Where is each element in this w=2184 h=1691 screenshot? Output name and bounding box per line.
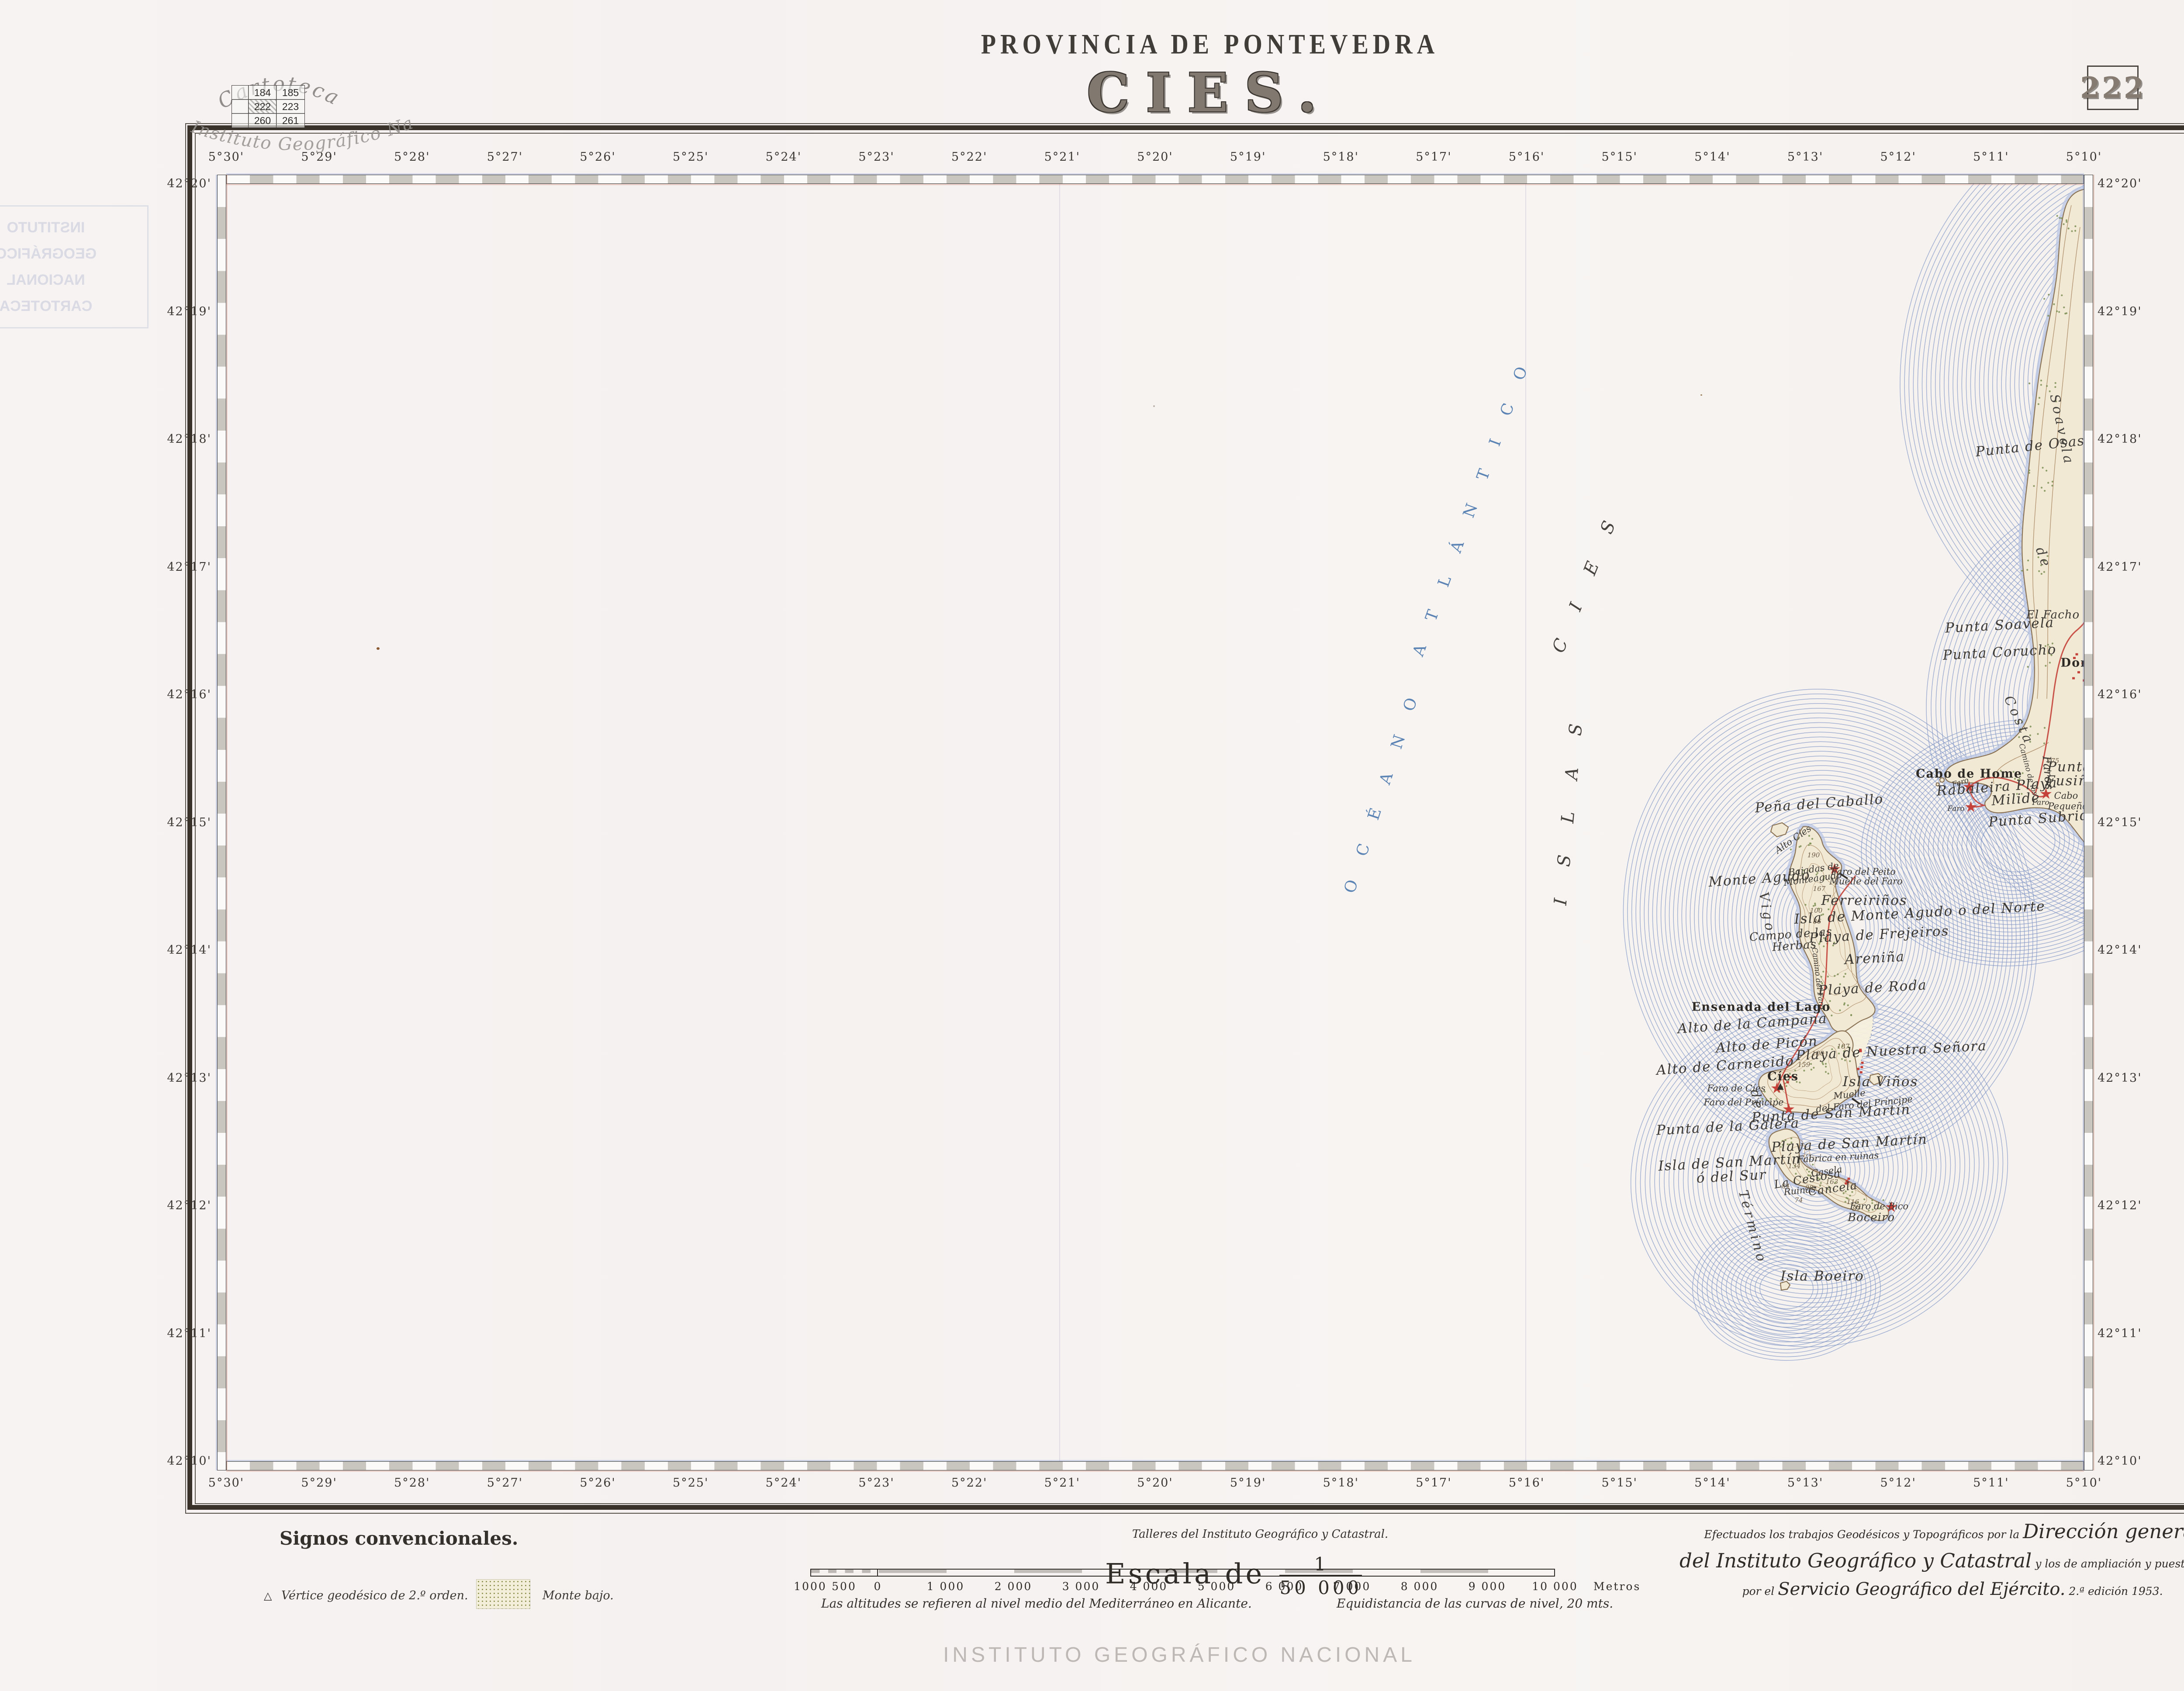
ign-watermark: INSTITUTO GEOGRÁFICO NACIONAL	[786, 1643, 1572, 1667]
sheet-index-cell: 184	[248, 85, 277, 100]
map-label: Punta Soavela	[1945, 614, 2055, 636]
credits-line2-small: y los de ampliación y puesta al día	[2032, 1557, 2184, 1570]
sheet-number-box: 222	[2087, 66, 2139, 110]
map-label: Costa	[2001, 694, 2037, 748]
credits-line2-big: del Instituto Geográfico y Catastral	[1679, 1549, 2032, 1572]
map-label: 159	[1798, 1061, 1811, 1069]
map-label: 163	[1826, 1178, 1838, 1186]
map-label: 74	[1794, 1196, 1803, 1204]
scale-bar-label: 8 000	[1389, 1580, 1450, 1593]
legend-heading: Signos convencionales.	[280, 1528, 518, 1549]
credits-line3-post: 2.ª edición 1953.	[2065, 1585, 2163, 1598]
map-label: Punta Subrido	[1988, 807, 2084, 830]
graticule-band-top	[226, 175, 2084, 184]
map-label: Término	[1735, 1188, 1770, 1266]
map-label: Alto de la Campana	[1677, 1011, 1828, 1037]
geodesic-vertex-icon: △	[264, 1590, 272, 1602]
credits-block: Efectuados los trabajos Geodésicos y Top…	[1629, 1519, 2184, 1605]
sheet-index-cell: 185	[276, 85, 305, 100]
bleed-through-line: CARTOTECA	[0, 293, 138, 319]
scale-bar-label: 3 000	[1051, 1580, 1112, 1593]
sheet-index-cell	[232, 85, 249, 100]
ign-stamp-arc: Instituto Geográfico Nacional	[179, 117, 424, 174]
scale-bar-label: 7 000	[1321, 1580, 1382, 1593]
map-label: Vigo	[1755, 891, 1778, 935]
map-label: ó del Sur	[1696, 1167, 1767, 1186]
scale-bar-label: 10 000	[1524, 1580, 1586, 1593]
sheet-index-cell	[232, 99, 249, 114]
map-label: Isla Boeiro	[1780, 1268, 1864, 1284]
bleed-through-stamp: INSTITUTO GEOGRÁFICONACIONALCARTOTECA	[0, 205, 149, 328]
credits-line3-pre: por el	[1742, 1585, 1778, 1598]
map-label: Muelle del Faro	[1829, 876, 1903, 887]
bleed-through-line: NACIONAL	[0, 267, 138, 293]
scale-bar-label: 0	[847, 1580, 909, 1593]
map-label: de	[2032, 545, 2054, 571]
province-title: PROVINCIA DE PONTEVEDRA	[948, 28, 1472, 61]
map-sheet-page: INSTITUTO GEOGRÁFICONACIONALCARTOTECA PR…	[0, 0, 2184, 1691]
sheet-title: CIES.	[948, 61, 1472, 124]
graticule-band-left	[217, 175, 226, 1470]
map-label: Isla Viños	[1843, 1074, 1918, 1090]
map-labels-layer: O C É A N OA T L Á N T I C OI S L A SC I…	[226, 184, 2084, 1461]
legend-item-monte-bajo: Monte bajo.	[543, 1589, 614, 1602]
credits-line3-big: Servicio Geográfico del Ejército.	[1778, 1579, 2065, 1599]
monte-bajo-swatch-icon	[476, 1579, 530, 1609]
map-label: Cabo	[2054, 790, 2078, 801]
equidistance-note: Equidistancia de las curvas de nivel, 20…	[1337, 1596, 1613, 1611]
map-label: 175	[2047, 757, 2060, 765]
scale-bar-label: 4 000	[1118, 1580, 1179, 1593]
map-label: Donón	[2061, 656, 2084, 670]
scale-bar-label: 2 000	[983, 1580, 1044, 1593]
legend-item-geodesic: Vértice geodésico de 2.º orden.	[281, 1589, 468, 1602]
map-label: A T L Á N T I C O	[1410, 355, 1535, 659]
altitude-note: Las altitudes se refieren al nivel medio…	[821, 1596, 1252, 1611]
sheet-index-cell: 222	[248, 99, 277, 114]
workshop-note: Talleres del Instituto Geográfico y Cata…	[1075, 1528, 1446, 1541]
map-label: Playa de Roda	[1818, 977, 1927, 998]
map-label: C I E S	[1548, 506, 1624, 656]
graticule-band-bottom	[226, 1461, 2084, 1470]
scale-bar-label: 9 000	[1457, 1580, 1518, 1593]
map-label: Peña del Caballo	[1755, 791, 1884, 816]
map-label: Cíes	[1767, 1070, 1799, 1084]
map-label: Faro del Príncipe	[1704, 1097, 1783, 1108]
scale-bar	[810, 1569, 1555, 1577]
credits-line1-small: Efectuados los trabajos Geodésicos y Top…	[1704, 1528, 2023, 1541]
map-label: Faro de Cíes	[1707, 1083, 1766, 1094]
svg-text:Instituto Geográfico Nacional: Instituto Geográfico Nacional	[179, 117, 416, 155]
sheet-index-cell: 223	[276, 99, 305, 114]
credits-line1-big: Dirección general	[2023, 1520, 2184, 1543]
map-label: Soavela	[2046, 393, 2077, 467]
graticule-band-right	[2084, 175, 2093, 1470]
map-label: 100	[1810, 907, 1823, 915]
scale-bar-extension	[810, 1569, 878, 1577]
sheet-number: 222	[2080, 71, 2146, 105]
map-label: Boceiro	[1848, 1211, 1895, 1224]
map-area: ★★★★★★★▲ O C É A N OA T L Á N T I C OI S…	[226, 184, 2084, 1461]
map-label: Faro	[2032, 798, 2049, 807]
map-label: Faro de Bico	[1850, 1201, 1908, 1211]
map-label: 88	[1805, 1184, 1813, 1192]
scale-bar-label: 5 000	[1186, 1580, 1247, 1593]
map-label: 190	[1807, 851, 1820, 859]
map-label: 84	[1781, 1182, 1790, 1190]
ign-stamp-text: Instituto Geográfico Nacional	[179, 117, 416, 155]
map-label: Punta de la Galera	[1656, 1115, 1800, 1138]
map-label: Punta Corucho	[1942, 642, 2057, 663]
map-label: 86	[1813, 918, 1821, 925]
map-label: Faro del Peito	[1831, 866, 1896, 877]
map-label: I S L A S	[1551, 710, 1588, 906]
map-label: 134	[1788, 1162, 1801, 1170]
scale-bar-label: 6 000	[1254, 1580, 1315, 1593]
map-label: Areniña	[1844, 949, 1905, 967]
bleed-through-line: INSTITUTO GEOGRÁFICO	[0, 214, 138, 267]
scale-bar-label: 1 000	[915, 1580, 976, 1593]
map-label: O C É A N O	[1341, 686, 1424, 895]
map-label: Faro	[1947, 804, 1964, 813]
map-label: 100	[1812, 1049, 1825, 1057]
map-label: 167	[1813, 885, 1826, 893]
